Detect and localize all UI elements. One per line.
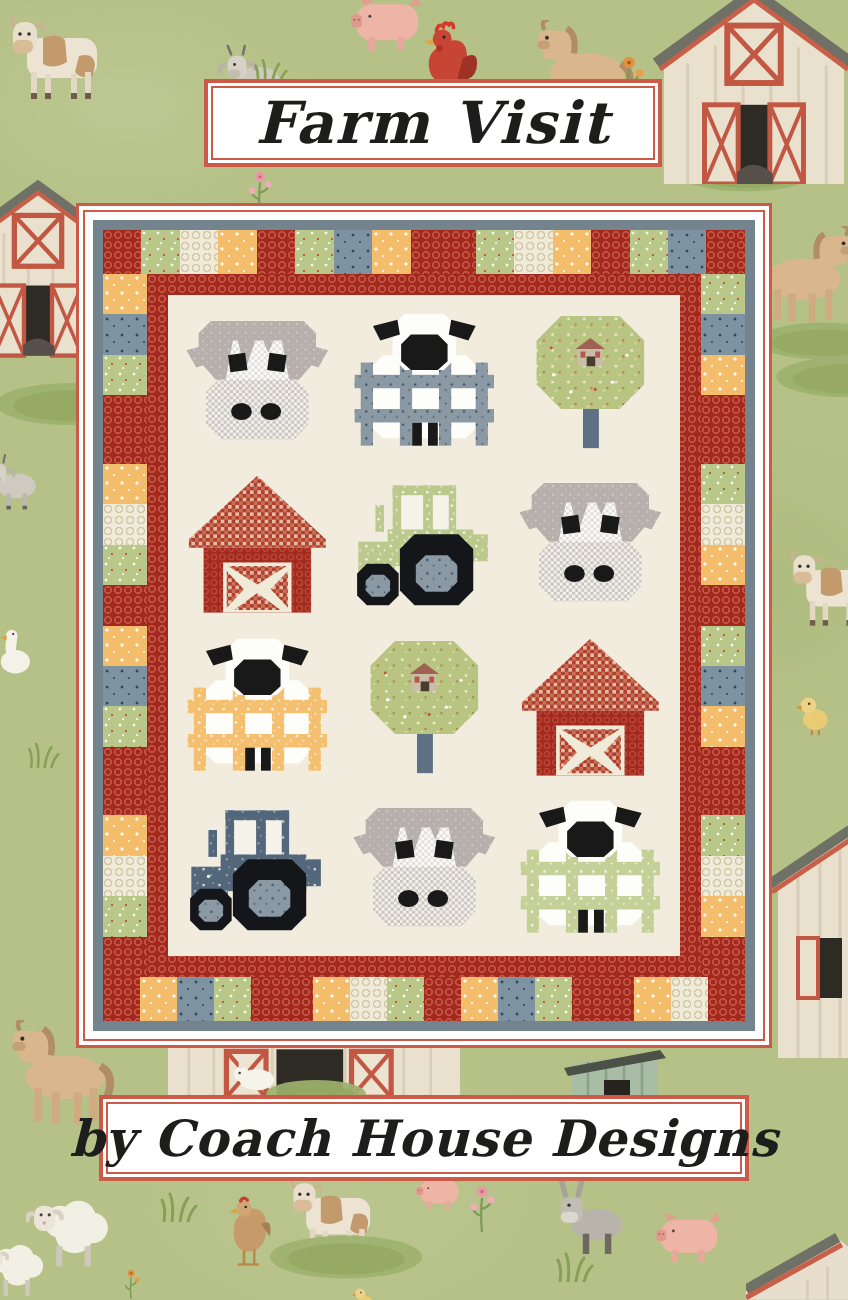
pieced-square-yellow (634, 977, 671, 1021)
pieced-square-blue (701, 314, 745, 354)
quilt-block-cell (507, 463, 674, 625)
quilt-block-tractor-darkblue (184, 795, 331, 943)
pieced-square-red (591, 230, 629, 274)
quilt-block-cow (184, 308, 331, 456)
quilt-block-tractor-green (351, 470, 498, 618)
pattern-cover: Farm Visit (0, 0, 848, 1300)
pieced-square-green (103, 896, 147, 936)
pieced-square-cream (350, 977, 387, 1021)
pieced-square-yellow (461, 977, 498, 1021)
pieced-square-blue (668, 230, 706, 274)
pieced-square-blue (177, 977, 214, 1021)
pieced-square-red (701, 585, 745, 625)
pieced-square-green (476, 230, 514, 274)
byline: by Coach House Designs (69, 1109, 778, 1168)
pieced-square-blue (334, 230, 372, 274)
pieced-square-green (630, 230, 668, 274)
pieced-square-yellow (218, 230, 256, 274)
quilt-block-sheep-blue-fence (351, 308, 498, 456)
pieced-square-blue (103, 666, 147, 706)
pieced-square-yellow (701, 706, 745, 746)
quilt-block-cell (507, 626, 674, 788)
pieced-square-red2 (701, 747, 745, 816)
pieced-square-yellow (140, 977, 177, 1021)
quilt-center-field (168, 295, 680, 956)
pieced-square-green (141, 230, 179, 274)
quilt-block-tree (517, 308, 664, 456)
pieced-square-red2 (572, 977, 635, 1021)
quilt-block-cell (507, 301, 674, 463)
pieced-square-cream (103, 856, 147, 896)
bg-chick-motif (794, 688, 834, 736)
pieced-square-green (214, 977, 251, 1021)
pieced-square-cream (701, 504, 745, 544)
bg-grass-patch-motif (268, 1232, 424, 1282)
bg-flower-pink-motif (468, 1180, 496, 1234)
pieced-square-green (103, 706, 147, 746)
pattern-title: Farm Visit (255, 89, 610, 157)
pieced-square-red (708, 977, 745, 1021)
quilt-block-sheep-green-fence (517, 795, 664, 943)
red-inner-border (147, 274, 701, 977)
bg-barn-front-motif (648, 0, 848, 184)
pieced-square-red2 (103, 395, 147, 464)
pieced-square-yellow (103, 626, 147, 666)
pieced-square-red (103, 977, 140, 1021)
pieced-square-yellow (701, 545, 745, 585)
quilt-block-sheep-yellow-fence (184, 633, 331, 781)
pieced-square-blue (701, 666, 745, 706)
pieced-square-red (257, 230, 295, 274)
pieced-square-red (103, 937, 147, 977)
quilt-photo-frame (76, 203, 772, 1048)
pieced-square-red2 (103, 747, 147, 816)
pieced-square-red (706, 230, 744, 274)
quilt-block-barn (517, 633, 664, 781)
quilt (93, 220, 755, 1031)
quilt-block-cow (517, 470, 664, 618)
quilt-block-tree (351, 633, 498, 781)
quilt-block-cow (351, 795, 498, 943)
quilt-photo-frame-inner (83, 210, 765, 1041)
pieced-square-cream (103, 504, 147, 544)
pieced-square-red2 (701, 395, 745, 464)
quilt-block-cell (174, 626, 341, 788)
pieced-square-green (295, 230, 333, 274)
title-box-inner: Farm Visit (211, 86, 655, 160)
pieced-square-green (387, 977, 424, 1021)
pieced-square-red (701, 937, 745, 977)
pieced-square-yellow (701, 355, 745, 395)
pieced-border-left (103, 274, 147, 977)
pieced-square-green (701, 815, 745, 855)
pieced-square-yellow (313, 977, 350, 1021)
pieced-square-red2 (251, 977, 314, 1021)
pieced-square-yellow (103, 815, 147, 855)
bg-grass-tuft-motif (554, 1252, 594, 1282)
pieced-square-yellow (372, 230, 410, 274)
quilt-block-barn (184, 470, 331, 618)
pieced-square-cream (514, 230, 552, 274)
bg-flower-orange-motif (118, 1266, 144, 1300)
quilt-block-cell (341, 788, 508, 950)
pieced-square-cream (671, 977, 708, 1021)
quilt-block-cell (174, 788, 341, 950)
pieced-border-top (103, 230, 745, 274)
pieced-square-red (103, 585, 147, 625)
quilt-block-cell (341, 463, 508, 625)
pieced-border-bottom (103, 977, 745, 1021)
pieced-square-green (103, 355, 147, 395)
pieced-square-yellow (553, 230, 591, 274)
pieced-square-cream (701, 856, 745, 896)
title-box: Farm Visit (204, 79, 662, 167)
bg-cow-motif (788, 548, 848, 632)
bg-bunny-motif (230, 1056, 278, 1092)
pieced-square-green (103, 545, 147, 585)
pieced-square-yellow (103, 464, 147, 504)
quilt-block-cell (174, 301, 341, 463)
pieced-square-green (535, 977, 572, 1021)
bg-grass-tuft-motif (26, 742, 60, 768)
pieced-square-yellow (701, 896, 745, 936)
bg-chick-motif (346, 1282, 382, 1300)
quilt-block-cell (341, 301, 508, 463)
pieced-square-blue (498, 977, 535, 1021)
quilt-block-cell (341, 626, 508, 788)
byline-box: by Coach House Designs (99, 1095, 749, 1181)
pieced-square-green (701, 626, 745, 666)
quilt-block-cell (174, 463, 341, 625)
quilt-block-cell (507, 788, 674, 950)
pieced-square-blue (103, 314, 147, 354)
pieced-square-green (701, 274, 745, 314)
bg-goat-motif (0, 450, 46, 516)
bg-grass-patch-motif (768, 354, 848, 400)
bg-pig-motif (650, 1210, 728, 1266)
bg-barn-sliver-motif (768, 818, 848, 1058)
pieced-square-red (424, 977, 461, 1021)
bg-goose-motif (0, 618, 36, 680)
bg-cow-motif (8, 14, 120, 106)
pieced-square-green (701, 464, 745, 504)
pieced-border-right (701, 274, 745, 977)
pieced-square-red2 (411, 230, 476, 274)
bg-donkey-motif (546, 1180, 638, 1258)
pieced-square-cream (180, 230, 218, 274)
byline-box-inner: by Coach House Designs (106, 1102, 742, 1174)
bg-lamb-motif (0, 1232, 54, 1300)
bg-grass-tuft-motif (158, 1192, 198, 1222)
bg-roof-corner-motif (746, 1224, 848, 1300)
pieced-square-yellow (103, 274, 147, 314)
pieced-square-red (103, 230, 141, 274)
